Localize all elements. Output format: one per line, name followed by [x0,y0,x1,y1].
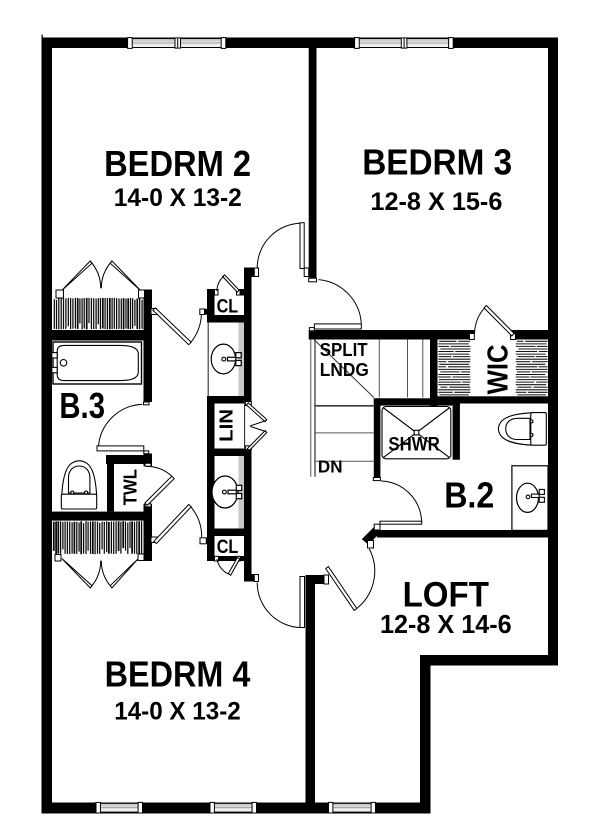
svg-text:LNDG: LNDG [320,359,369,380]
svg-text:LIN: LIN [216,409,237,442]
svg-text:14-0 X 13-2: 14-0 X 13-2 [114,698,241,726]
svg-text:CL: CL [217,296,239,318]
svg-text:DN: DN [318,457,343,477]
svg-text:B.2: B.2 [444,475,494,516]
svg-text:SHWR: SHWR [388,434,439,456]
svg-text:TWL: TWL [120,469,141,505]
svg-text:WIC: WIC [483,344,515,394]
svg-text:B.3: B.3 [59,385,105,426]
svg-text:14-0 X 13-2: 14-0 X 13-2 [114,184,242,212]
svg-text:CL: CL [217,536,239,558]
svg-text:12-8 X 14-6: 12-8 X 14-6 [380,609,512,639]
svg-text:BEDRM 2: BEDRM 2 [104,143,251,184]
svg-text:SPLIT: SPLIT [320,339,368,360]
svg-text:12-8 X 15-6: 12-8 X 15-6 [370,188,502,216]
svg-text:BEDRM 4: BEDRM 4 [105,654,251,695]
svg-text:BEDRM 3: BEDRM 3 [362,142,512,183]
